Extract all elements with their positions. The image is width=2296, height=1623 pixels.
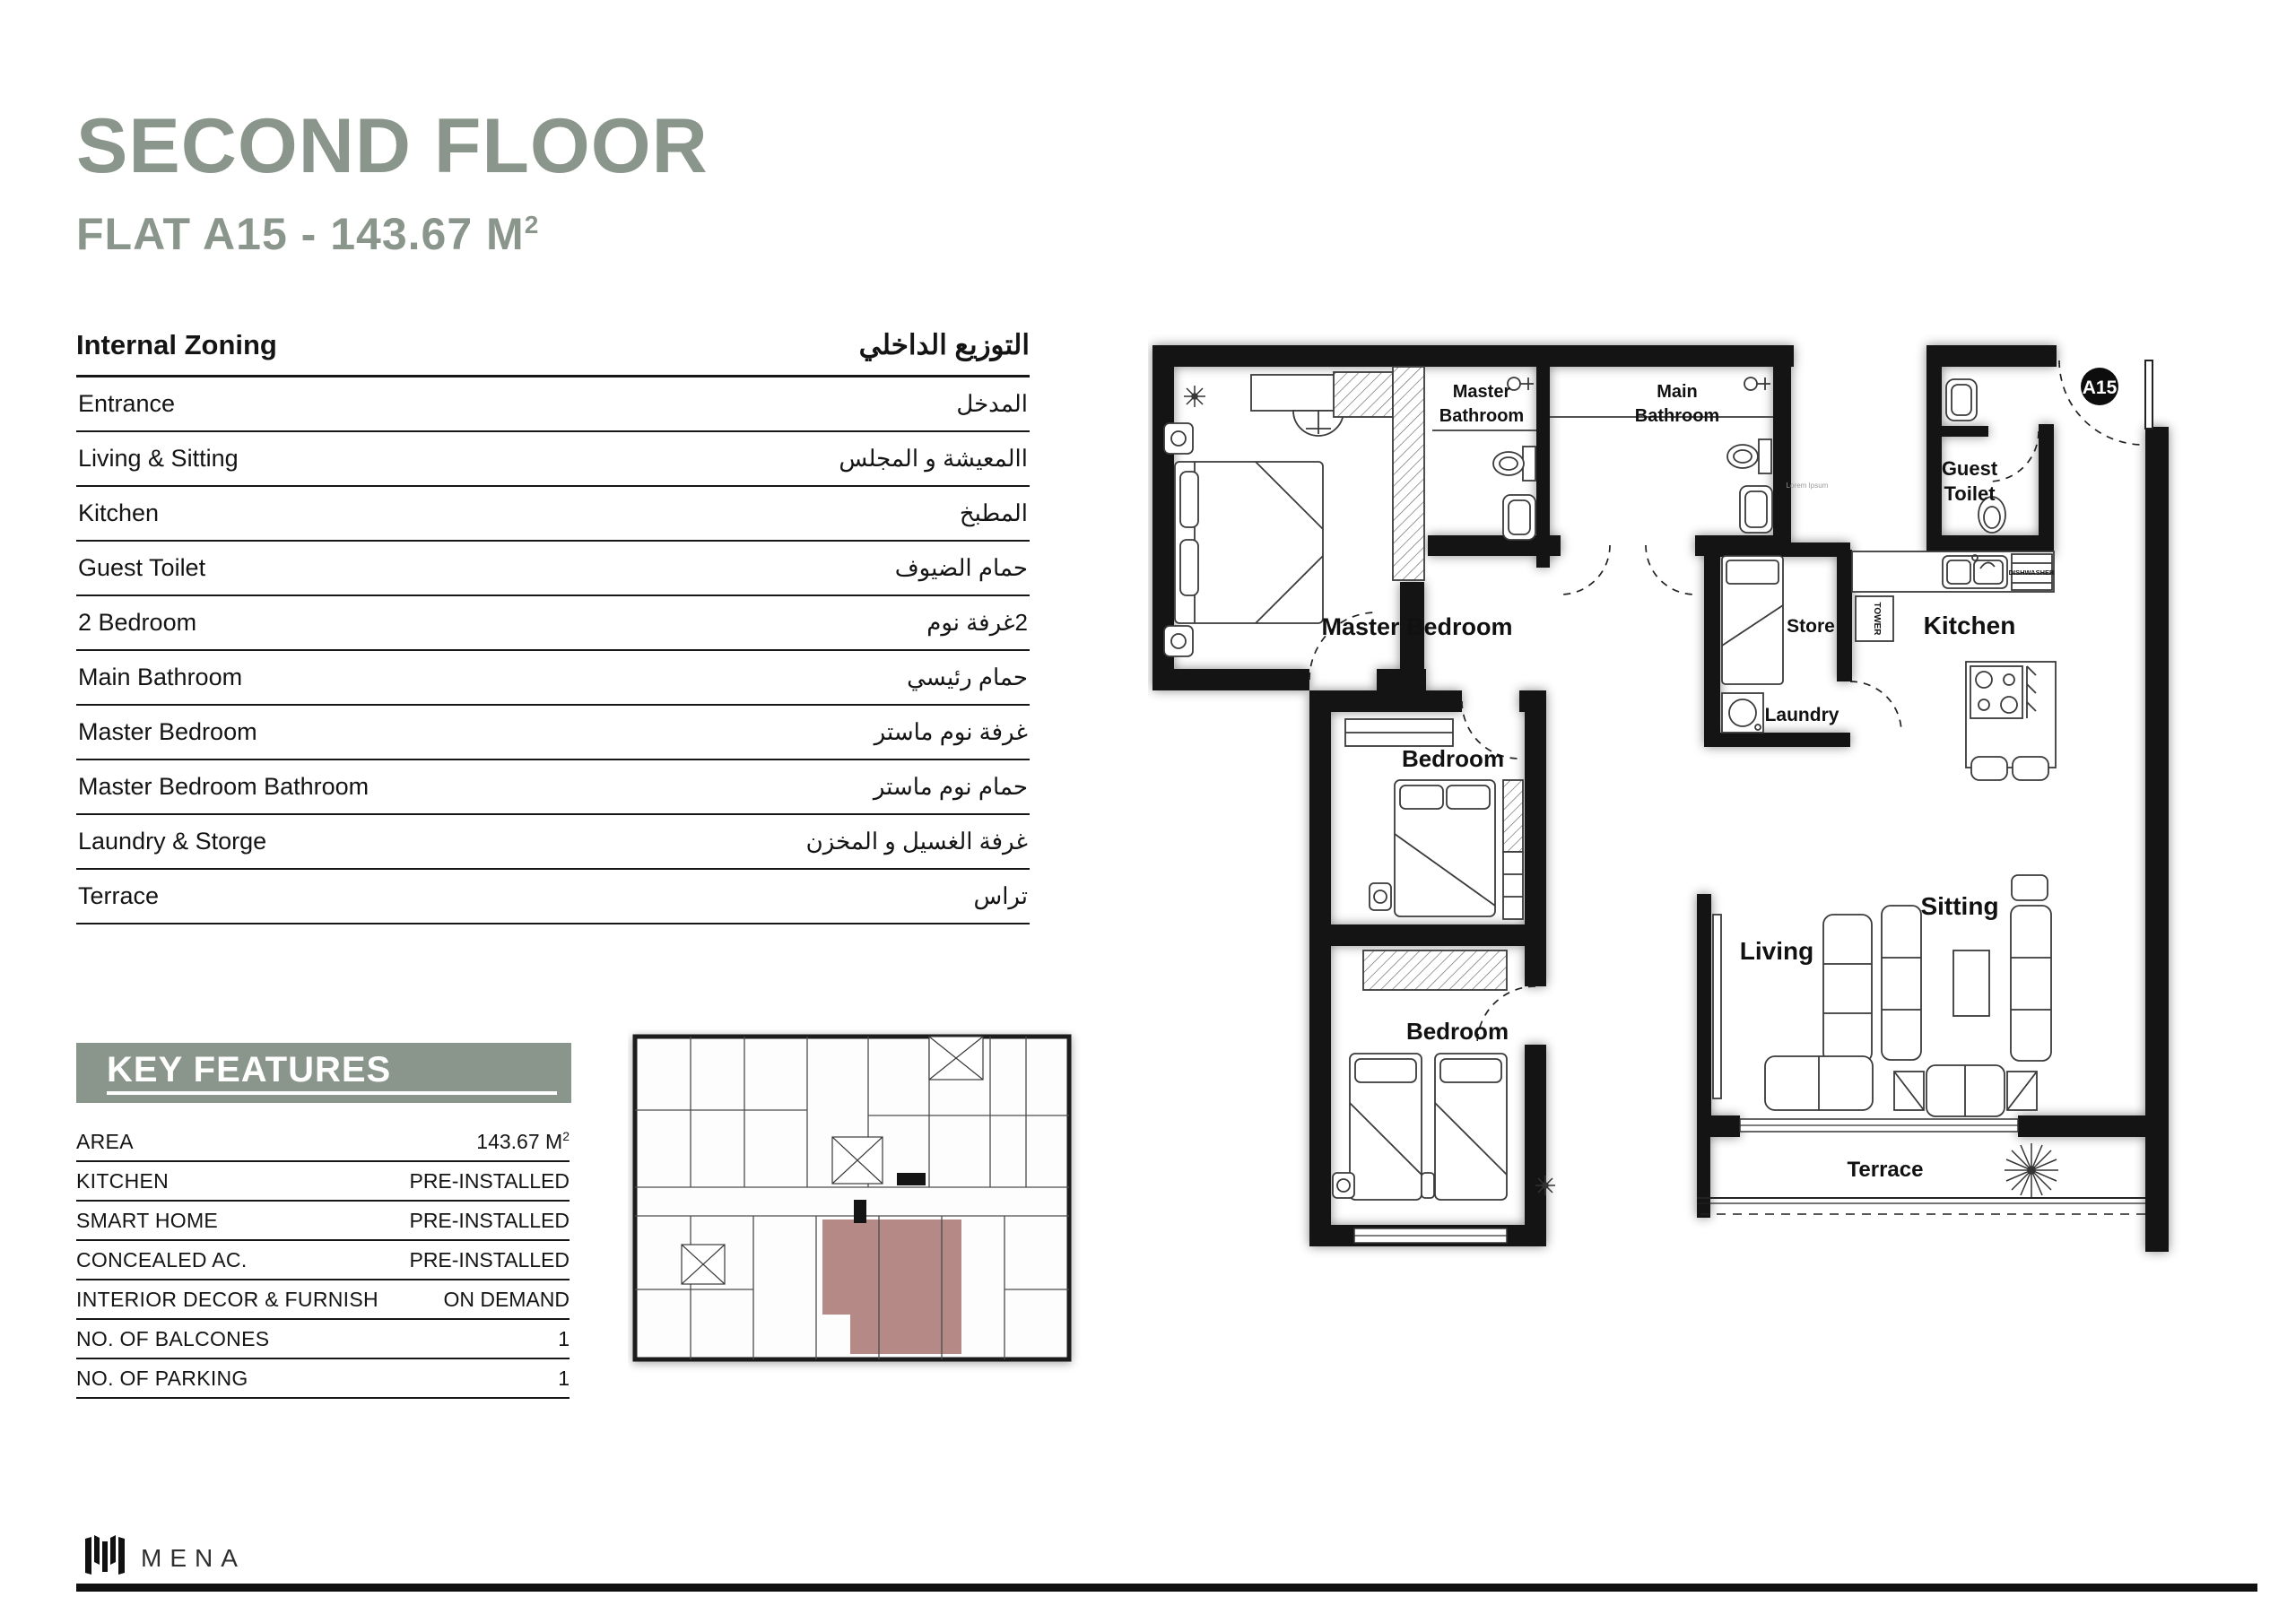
room-label-sitting: Sitting [1920, 892, 1998, 920]
feature-label: CONCEALED AC. [76, 1248, 248, 1272]
zoning-label-en: Master Bedroom Bathroom [76, 773, 369, 801]
flat-subtitle-text: FLAT A15 - 143.67 M [76, 209, 525, 259]
sink-icon [1503, 495, 1535, 540]
feature-value: ON DEMAND [443, 1288, 570, 1312]
wardrobe-icon [1503, 780, 1523, 852]
sink-icon [1740, 486, 1772, 533]
area-superscript: 2 [562, 1129, 570, 1143]
unit-badge: A15 [2081, 368, 2118, 405]
toilet-icon [1493, 447, 1535, 481]
zoning-label-en: Terrace [76, 882, 159, 910]
zoning-title-ar: التوزيع الداخلي [859, 329, 1030, 361]
feature-value: 1 [558, 1367, 570, 1391]
area-value: 143.67 M [476, 1130, 562, 1153]
zoning-row: Living & Sittingاالمعيشة و المجلس [76, 432, 1030, 487]
building-minimap [628, 1029, 1148, 1397]
brand-name: MENA [141, 1544, 246, 1573]
zoning-label-en: Laundry & Storge [76, 828, 266, 855]
room-label-living: Living [1740, 937, 1813, 965]
plant-icon [2005, 1143, 2058, 1197]
key-features-banner: KEY FEATURES [76, 1043, 571, 1103]
sink-icon [1946, 379, 1977, 421]
zoning-label-ar: حمام رئيسي [907, 664, 1030, 691]
feature-row: SMART HOMEPRE-INSTALLED [76, 1202, 570, 1241]
brand-logo: MENA [85, 1535, 246, 1576]
bed-icon [1722, 556, 1783, 684]
wardrobe-icon [1393, 367, 1424, 580]
room-label-store: Store [1787, 616, 1835, 637]
appliance-label-tower: TOWER [1872, 602, 1882, 636]
room-label-main-bathroom: Main [1657, 382, 1698, 402]
zoning-row: Terraceتراس [76, 870, 1030, 924]
room-label-main-bathroom: Bathroom [1635, 406, 1719, 426]
bed-icon [1395, 780, 1495, 916]
feature-label: NO. OF BALCONES [76, 1327, 269, 1351]
feature-row: KITCHENPRE-INSTALLED [76, 1162, 570, 1202]
room-label-bedroom: Bedroom [1402, 745, 1504, 772]
zoning-row: Master Bedroomغرفة نوم ماستر [76, 706, 1030, 760]
shelf-icon [1503, 852, 1523, 919]
wardrobe-icon [1363, 950, 1507, 990]
zoning-row: Laundry & Storgeغرفة الغسيل و المخزن [76, 815, 1030, 870]
zoning-label-ar: حمام الضيوف [895, 554, 1030, 582]
plant-icon [1535, 1176, 1555, 1195]
feature-value: 143.67 M2 [476, 1129, 570, 1154]
zoning-label-en: Kitchen [76, 499, 159, 527]
terrace-edge [1697, 1198, 2145, 1214]
key-features-title: KEY FEATURES [107, 1050, 391, 1090]
feature-value: 1 [558, 1327, 570, 1351]
coffee-table-icon [1953, 950, 1989, 1016]
feature-label: KITCHEN [76, 1169, 169, 1193]
feature-row: AREA143.67 M2 [76, 1123, 570, 1162]
mena-logomark-icon [85, 1535, 126, 1576]
room-label-bedroom: Bedroom [1406, 1018, 1509, 1045]
room-label-master-bathroom: Master [1453, 382, 1511, 402]
bed-icon [1175, 462, 1323, 623]
feature-value: PRE-INSTALLED [409, 1209, 570, 1233]
zoning-label-en: Master Bedroom [76, 718, 257, 746]
room-label-kitchen: Kitchen [1924, 612, 2016, 639]
feature-value: PRE-INSTALLED [409, 1169, 570, 1193]
faucet-icon [1508, 378, 1534, 390]
zoning-row: Kitchenالمطبخ [76, 487, 1030, 542]
zoning-row: Main Bathroomحمام رئيسي [76, 651, 1030, 706]
zoning-label-en: Entrance [76, 390, 175, 418]
room-label-guest-toilet: Guest [1942, 457, 1998, 480]
zoning-label-ar: المدخل [956, 390, 1030, 418]
room-label-laundry: Laundry [1765, 705, 1839, 725]
subtitle-superscript: 2 [525, 211, 540, 239]
feature-label: SMART HOME [76, 1209, 218, 1233]
zoning-label-ar: 2غرفة نوم [926, 609, 1030, 637]
feature-row: CONCEALED AC.PRE-INSTALLED [76, 1241, 570, 1280]
zoning-label-en: 2 Bedroom [76, 609, 196, 637]
entry-door-leaf [2145, 360, 2152, 429]
zoning-row: 2 Bedroom2غرفة نوم [76, 596, 1030, 651]
zoning-row: Entranceالمدخل [76, 378, 1030, 432]
flat-subtitle: FLAT A15 - 143.67 M2 [76, 208, 539, 260]
room-label-master-bedroom: Master Bedroom [1321, 613, 1512, 640]
zoning-title-en: Internal Zoning [76, 329, 277, 361]
room-label-terrace: Terrace [1848, 1158, 1924, 1182]
zoning-label-ar: حمام نوم ماستر [874, 773, 1030, 801]
zoning-label-ar: غرفة نوم ماستر [874, 718, 1030, 746]
room-label-master-bathroom: Bathroom [1439, 406, 1524, 426]
feature-row: NO. OF BALCONES1 [76, 1320, 570, 1359]
floor-plan: A15 Master Bedroom Master Bathroom Main … [1148, 206, 2269, 1300]
zoning-label-ar: المطبخ [960, 499, 1030, 527]
room-label-guest-toilet: Toilet [1944, 482, 1996, 505]
zoning-label-ar: تراس [973, 882, 1030, 910]
dresser-icon [1345, 719, 1453, 746]
closet-icon [1334, 372, 1393, 417]
page-title: SECOND FLOOR [76, 106, 709, 187]
feature-row: NO. OF PARKING1 [76, 1359, 570, 1399]
tv-console-icon [1713, 915, 1721, 1098]
zoning-label-ar: غرفة الغسيل و المخزن [806, 828, 1030, 855]
zoning-label-en: Main Bathroom [76, 664, 242, 691]
nightstand-icon [1370, 883, 1391, 910]
feature-label: INTERIOR DECOR & FURNISH [76, 1288, 378, 1312]
zoning-label-en: Guest Toilet [76, 554, 205, 582]
appliance-label-dishwasher: DISHWASHER [2009, 568, 2055, 577]
feature-label: AREA [76, 1130, 134, 1154]
feature-label: NO. OF PARKING [76, 1367, 248, 1391]
zoning-row: Guest Toiletحمام الضيوف [76, 542, 1030, 596]
svg-text:A15: A15 [2083, 378, 2118, 398]
washing-machine-icon [1722, 693, 1763, 733]
internal-zoning-table: Internal Zoning التوزيع الداخلي Entrance… [76, 316, 1030, 924]
feature-value: PRE-INSTALLED [409, 1248, 570, 1272]
footer-rule [76, 1584, 2257, 1592]
feature-row: INTERIOR DECOR & FURNISHON DEMAND [76, 1280, 570, 1320]
plant-icon [1184, 386, 1205, 407]
zoning-header: Internal Zoning التوزيع الداخلي [76, 316, 1030, 378]
zoning-label-en: Living & Sitting [76, 445, 239, 473]
faucet-icon [1744, 378, 1770, 390]
key-features-underline [107, 1091, 557, 1095]
stove-island-icon [1966, 662, 2056, 768]
key-features-table: AREA143.67 M2 KITCHENPRE-INSTALLED SMART… [76, 1123, 570, 1399]
kitchen-sink-icon [1943, 555, 2007, 588]
toilet-icon [1727, 439, 1771, 473]
zoning-row: Master Bedroom Bathroomحمام نوم ماستر [76, 760, 1030, 815]
watermark: Lorem Ipsum [1787, 482, 1829, 490]
zoning-label-ar: االمعيشة و المجلس [839, 445, 1030, 473]
